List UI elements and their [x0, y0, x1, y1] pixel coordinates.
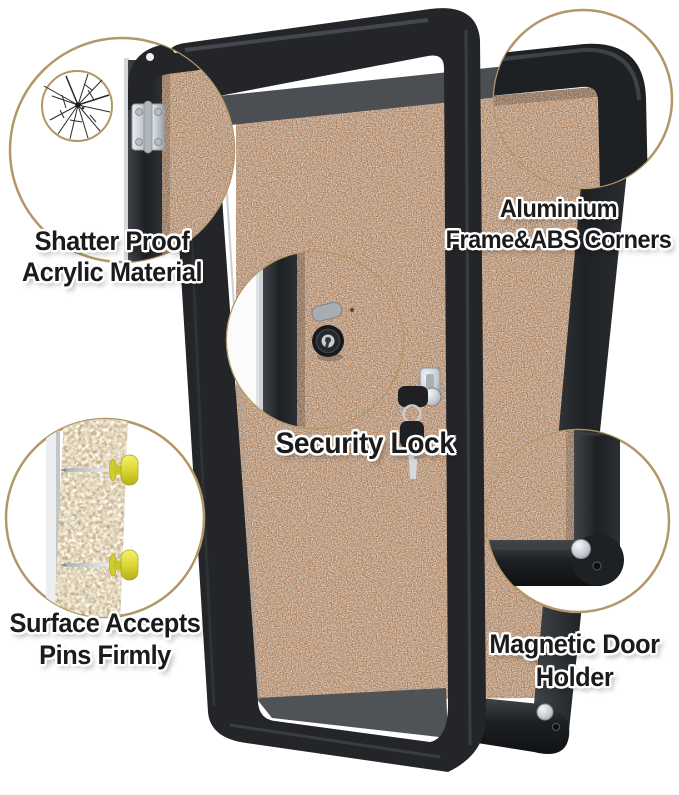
label-line: Surface Accepts [6, 607, 203, 639]
magnet-disc [537, 704, 553, 720]
label-line: Frame&ABS Corners [445, 225, 672, 256]
label-shatter-proof: Shatter Proof Acrylic Material [9, 226, 216, 288]
label-pin-surface: Surface Accepts Pins Firmly [6, 607, 203, 671]
label-line: Holder [476, 661, 672, 694]
label-magnetic-holder: Magnetic Door Holder [476, 628, 672, 694]
label-line: Aluminium [445, 194, 672, 225]
label-aluminium-frame: Aluminium Frame&ABS Corners [445, 194, 672, 256]
label-line: Shatter Proof [9, 226, 216, 257]
key-head-inserted [398, 386, 428, 407]
label-line: Security Lock [233, 427, 496, 461]
label-line: Pins Firmly [6, 639, 203, 671]
label-line: Magnetic Door [476, 628, 672, 661]
holder-hole [553, 724, 560, 731]
label-security-lock: Security Lock [233, 427, 496, 461]
label-line: Acrylic Material [9, 257, 216, 288]
product-feature-image: Shatter Proof Acrylic Material Aluminium… [0, 0, 679, 795]
